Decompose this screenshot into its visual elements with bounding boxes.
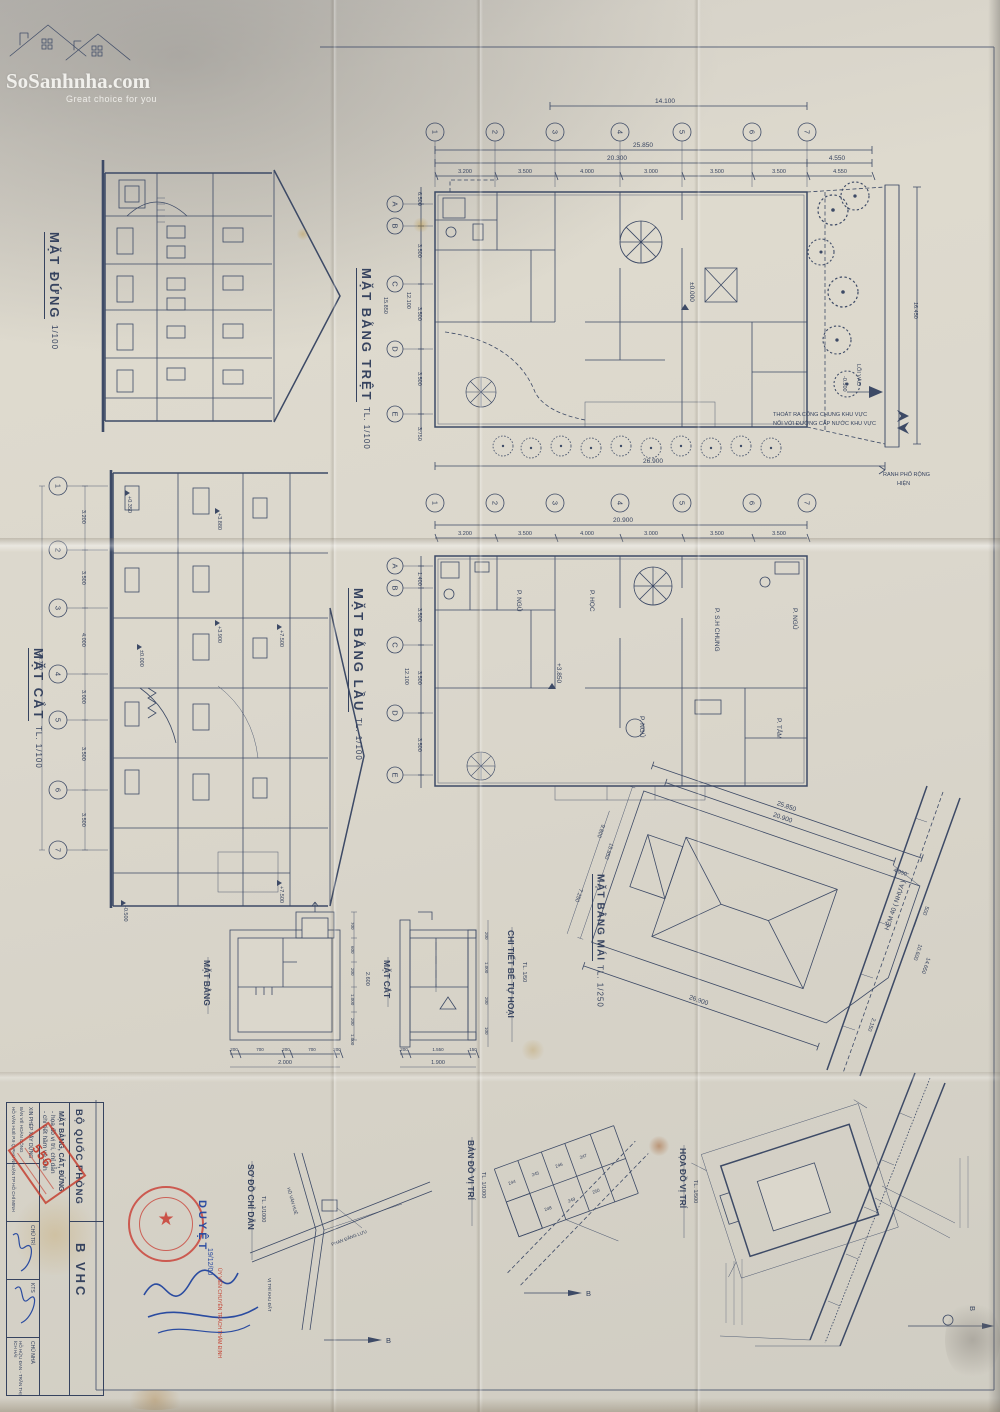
- dim-label: 1.000: [350, 1034, 355, 1046]
- dim-label: 200: [282, 1047, 290, 1052]
- dim-label: 4.000: [80, 633, 86, 647]
- upper-plan-title: MẶT BẰNG LẦU TL. 1/100: [350, 588, 365, 761]
- watermark-logo: SoSanhnha.com Great choice for you: [6, 12, 157, 104]
- parcel-label: 250: [592, 1187, 601, 1194]
- dim-label: 3.500: [416, 307, 422, 321]
- dim-label: 16.450: [912, 302, 918, 319]
- section-title-text: MẶT CẮT: [28, 648, 46, 721]
- grid-label: 2: [54, 548, 63, 552]
- street-lines: HỒ VĂN HUÊ PHAN ĐĂNG LƯU VỊ TRÍ KHU ĐẤT: [250, 1153, 432, 1330]
- ground-plan-scale: TL. 1/100: [360, 407, 371, 450]
- grid-label: 4: [616, 501, 625, 505]
- dim-label: 12.100: [405, 292, 411, 309]
- dim-label: 1.900: [431, 1060, 445, 1066]
- dim-label: 3.500: [772, 169, 786, 175]
- dim-label: 12.100: [403, 668, 409, 685]
- grid-label: B: [391, 223, 400, 228]
- dim-label: 14.100: [655, 98, 675, 105]
- room-labels: P. NGỦ P. HỌC P. S.H CHUNG P. NGỦ P. NGỦ…: [515, 590, 800, 739]
- road-lines: HẺM 40 ( NHỰA ): [827, 786, 960, 1076]
- grid-label: 5: [54, 718, 63, 722]
- stamp-note: ỦY VIÊN CHUYÊN TRÁCH THẨM ĐỊNH: [216, 1268, 222, 1358]
- entry-label: LỐI VÀO: [855, 364, 862, 387]
- grid-label: 2: [491, 130, 500, 134]
- parcel-label: 244: [508, 1179, 517, 1186]
- grid-label: 6: [748, 501, 757, 505]
- grid-label: 5: [678, 130, 687, 134]
- parcel-label: 249: [567, 1196, 576, 1203]
- grid-label: E: [391, 411, 400, 416]
- section-scale: TL. 1/100: [32, 726, 43, 769]
- dim-label: 500: [921, 905, 930, 916]
- dim-label: 1.000: [484, 962, 489, 974]
- dim-label: 1.000: [350, 994, 355, 1006]
- section-drawing: 1 2 3 4 5 6 7 3.200 3.500 4.000 3.000 3.…: [28, 458, 363, 926]
- north-label: B: [968, 1306, 977, 1311]
- level-label: ±0.000: [688, 282, 695, 302]
- grid-label: 7: [54, 848, 63, 852]
- level-label: +3.880: [216, 513, 222, 530]
- guide-map-title: SƠ ĐỒ CHỈ DẪN: [246, 1164, 257, 1230]
- dim-label: 2.600: [364, 972, 370, 986]
- north-arrow-icon: [324, 1337, 382, 1343]
- grid-label: D: [391, 710, 400, 716]
- dim-label: 150: [469, 1047, 477, 1052]
- parcel-label: 245: [531, 1170, 540, 1177]
- dim-label: 3.000: [644, 531, 658, 537]
- dim-label: 200: [350, 1018, 355, 1026]
- north-label: B: [586, 1289, 591, 1298]
- grid-label: 1: [431, 130, 440, 134]
- dim-label: 25.850: [633, 142, 653, 149]
- dim-label: 200: [333, 1047, 341, 1052]
- dim-label: 200: [350, 968, 355, 976]
- grid-bubbles-cols: 1 2 3 4 5 6 7: [426, 494, 816, 512]
- dim-label: 3.500: [416, 608, 422, 622]
- dim-label: 20.900: [613, 517, 633, 524]
- brand-name: SoSanhnha.com: [6, 69, 157, 94]
- level-label: +7.500: [278, 886, 284, 903]
- roof-plan-title-text: MẶT BẰNG MÁI: [592, 874, 606, 961]
- grid-label: D: [391, 346, 400, 352]
- road-lines: [720, 1073, 955, 1346]
- approve-date: 19/12/00: [206, 1248, 213, 1275]
- street-label: PHAN ĐĂNG LƯU: [330, 1228, 367, 1247]
- level-label: +7.500: [278, 630, 284, 647]
- dim-label: 200: [484, 997, 489, 1005]
- septic-detail-title: CHI TIẾT BỂ TỰ HOẠI: [506, 930, 517, 1018]
- blueprint-sheet: SoSanhnha.com Great choice for you MẶT Đ…: [0, 0, 1000, 1412]
- guide-map-scale: TL. 1/1000: [260, 1196, 266, 1222]
- elevation-title: MẶT ĐỨNG 1/100: [46, 232, 61, 350]
- dim-label: 1.400: [416, 572, 422, 586]
- parcel-label: 246: [555, 1161, 564, 1168]
- elevation-drawing: [35, 158, 347, 436]
- grid-label: 4: [616, 130, 625, 134]
- site-map-scale: TL. 1/500: [692, 1180, 698, 1203]
- brand-tagline: Great choice for you: [6, 94, 157, 104]
- grid-label: 3: [54, 606, 63, 610]
- location-map-title: BẢN ĐỒ VỊ TRÍ: [466, 1140, 477, 1201]
- roof-plan-group: 25.850 20.900 15.850 9.800 7.250 4.950 5…: [553, 748, 963, 1076]
- dim-label: 200: [400, 1047, 408, 1052]
- dim-label: 3.500: [416, 738, 422, 752]
- level-label: +0.350: [126, 496, 132, 513]
- dim-label: 3.500: [80, 747, 86, 761]
- dim-label: 3.500: [518, 531, 532, 537]
- room-label: P. NGỦ: [638, 716, 647, 738]
- agency-label: BỘ QUỐC PHÒNG: [73, 1109, 84, 1205]
- north-arrow-icon: [524, 1290, 582, 1296]
- dim-label: 100: [484, 1027, 489, 1035]
- roof-plan-drawing: 25.850 20.900 15.850 9.800 7.250 4.950 5…: [575, 778, 1000, 1078]
- grid-label: 1: [431, 501, 440, 505]
- grid-label: 6: [748, 130, 757, 134]
- dim-label: 3.500: [772, 531, 786, 537]
- dim-label: 200: [230, 1047, 238, 1052]
- section-title: MẶT CẮT TL. 1/100: [30, 648, 45, 769]
- dim-label: 700: [256, 1047, 264, 1052]
- site-map-drawing: HỌA ĐỒ VỊ TRÍ TL. 1/500 B: [660, 1068, 1000, 1346]
- site-map-title: HỌA ĐỒ VỊ TRÍ: [678, 1148, 689, 1209]
- grid-label: 5: [678, 501, 687, 505]
- level-label: +3.900: [216, 626, 222, 643]
- dim-label: 3.500: [710, 531, 724, 537]
- entry-arrow-icon: [869, 386, 883, 398]
- dim-label: 3.500: [518, 169, 532, 175]
- grid-label: 1: [54, 484, 63, 488]
- dim-label: 3.000: [644, 169, 658, 175]
- note-label: HIỆN: [897, 479, 910, 487]
- parcel-grid: 244 245 246 247 248 249 250: [473, 1118, 676, 1288]
- grid-label: 2: [491, 501, 500, 505]
- dim-label: 26.900: [643, 458, 663, 465]
- grid-label: 7: [803, 501, 812, 505]
- grid-bubbles-rows: A B C D E: [387, 196, 433, 422]
- owner-label: HỒ HỮU ĐAN - TRẦN THỊ ÍCH HẢI: [13, 1341, 23, 1395]
- dim-label: 4.550: [833, 169, 847, 175]
- dim-label: 1.550: [432, 1047, 444, 1052]
- location-map-drawing: BẢN ĐỒ VỊ TRÍ TL. 1/1000 244 245 246 247…: [452, 1108, 664, 1310]
- north-label: B: [386, 1336, 391, 1345]
- grid-label: C: [391, 281, 400, 287]
- signature-squiggle: [9, 1225, 39, 1335]
- level-label: -0.500: [122, 906, 128, 922]
- approval-signature: [138, 1255, 268, 1345]
- ground-floor-plan-drawing: 14.100 25.850 20.300 4.550 3.200 3.500 4…: [385, 92, 1000, 490]
- dim-label: 3.500: [80, 571, 86, 585]
- code-label: B VHC: [73, 1243, 88, 1298]
- dim-label: 700: [350, 922, 355, 930]
- dim-label: 600: [350, 946, 355, 954]
- dim-label: 3.500: [710, 169, 724, 175]
- dim-label: 6.500: [416, 192, 422, 206]
- dim-label: 2.000: [278, 1060, 292, 1066]
- grid-label: A: [391, 201, 400, 206]
- dim-label: 2.150: [866, 1017, 876, 1032]
- dim-label: 3.200: [458, 531, 472, 537]
- dim-label: 9.800: [595, 823, 605, 838]
- grid-label: 3: [551, 130, 560, 134]
- dim-label: -0.500: [841, 376, 847, 392]
- upper-floor-plan-drawing: 1 2 3 4 5 6 7 20.900 3.200 3.500 4.000 3…: [385, 478, 865, 816]
- level-label: ±0.000: [138, 650, 144, 667]
- dim-label: 15.850: [382, 297, 388, 314]
- grid-label: E: [391, 772, 400, 777]
- septic-detail-scale: TL. 1/50: [521, 962, 527, 982]
- dim-label: 7.250: [573, 888, 583, 903]
- dim-label: 4.000: [580, 169, 594, 175]
- dim-label: 10.600: [912, 943, 923, 961]
- upper-plan-scale: TL. 1/100: [352, 718, 363, 761]
- room-label: P. NGỦ: [791, 608, 800, 630]
- room-label: P. NGỦ: [515, 590, 524, 612]
- dim-label: 3.750: [416, 427, 422, 441]
- septic-plan-title: MẶT BẰNG: [202, 960, 212, 1006]
- grid-label: B: [391, 585, 400, 590]
- room-label: P. HỌC: [588, 590, 595, 612]
- upper-plan-title-text: MẶT BẰNG LẦU: [348, 588, 366, 712]
- dim-label: 14.650: [920, 957, 931, 975]
- dim-label: 3.500: [416, 244, 422, 258]
- roof-plan-title: MẶT BẰNG MÁI TL. 1/250: [594, 874, 606, 1008]
- dim-label: 3.500: [416, 372, 422, 386]
- role-label: CHỦ NHÀ: [29, 1341, 35, 1364]
- dim-label: 4.550: [829, 155, 846, 162]
- note-label: THOÁT RA CỐNG CHUNG KHU VỰC: [773, 411, 867, 418]
- houses-icon: [6, 12, 141, 64]
- grid-label: 4: [54, 672, 63, 676]
- grid-label: 6: [54, 788, 63, 792]
- room-label: P. TẮM: [775, 718, 784, 739]
- dim-label: 3.000: [80, 690, 86, 704]
- elevation-title-text: MẶT ĐỨNG: [44, 232, 62, 319]
- grid-label: A: [391, 563, 400, 568]
- ground-plan-title-text: MẶT BẰNG TRỆT: [356, 268, 374, 402]
- approve-label: DUYỆT: [196, 1200, 208, 1252]
- grid-bubbles-rows: A B C D E: [387, 558, 433, 783]
- level-label: +3.850: [555, 663, 562, 683]
- septic-section-title: MẶT CẮT: [382, 960, 392, 999]
- north-arrow-icon: [908, 1315, 994, 1329]
- grid-label: 3: [551, 501, 560, 505]
- septic-detail-drawing: 200 700 200 700 200 2.000 700 600 200 1.…: [178, 902, 530, 1080]
- street-label: HỒ VĂN HUÊ: [286, 1186, 300, 1215]
- round-stamp: ★: [128, 1186, 204, 1262]
- note-label: NỐI VỚI ĐƯỜNG CẤP NƯỚC KHU VỰC: [773, 420, 876, 427]
- dim-label: 4.000: [580, 531, 594, 537]
- roof-plan-scale: TL. 1/250: [594, 965, 605, 1008]
- site-lot-group: [688, 1097, 905, 1282]
- dim-label: 3.500: [416, 671, 422, 685]
- dim-label: 3.200: [80, 510, 86, 524]
- level-labels: +0.350 +3.880 +3.900 +7.500 ±0.000 -0.50…: [121, 490, 284, 922]
- dim-label: 200: [484, 932, 489, 940]
- note-label: RANH PHỐ RỘNG: [883, 471, 930, 478]
- stamp-star-icon: ★: [130, 1208, 202, 1231]
- grid-label: 7: [803, 130, 812, 134]
- dim-label: 20.300: [607, 155, 627, 162]
- room-label: P. S.H CHUNG: [713, 608, 720, 652]
- dim-label: 15.850: [603, 842, 614, 860]
- grid-bubbles-section: 1 2 3 4 5 6 7: [49, 477, 67, 859]
- location-map-scale: TL. 1/1000: [480, 1172, 486, 1198]
- dim-label: 3.500: [80, 813, 86, 827]
- parcel-label: 248: [544, 1205, 553, 1212]
- grid-label: C: [391, 642, 400, 648]
- elevation-scale: 1/100: [48, 325, 59, 350]
- dim-label: 3.200: [458, 169, 472, 175]
- road-hatch: [885, 185, 899, 447]
- dim-label: 700: [308, 1047, 316, 1052]
- ground-plan-title: MẶT BẰNG TRỆT TL. 1/100: [358, 268, 373, 450]
- parcel-label: 247: [579, 1153, 588, 1160]
